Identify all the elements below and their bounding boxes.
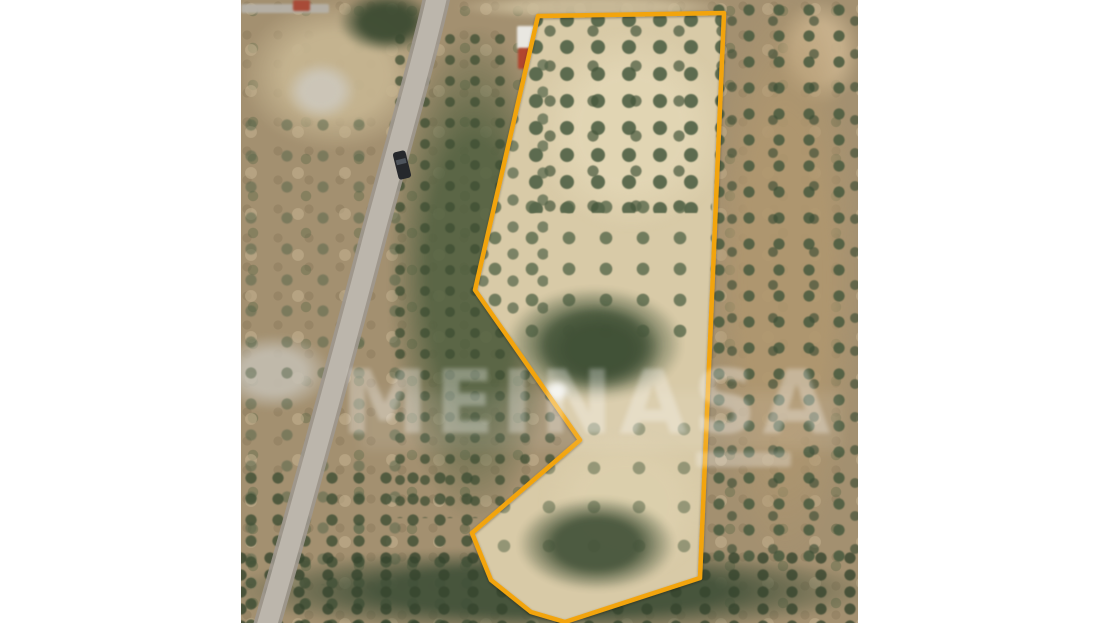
- watermark-subline: [696, 452, 791, 467]
- watermark-text: MEINASA: [341, 348, 821, 458]
- screenshot-canvas: MEINASA: [0, 0, 1100, 623]
- property-boundary-outline: [472, 13, 724, 622]
- satellite-photo: MEINASA: [241, 0, 858, 623]
- boundary-layer: [241, 0, 858, 623]
